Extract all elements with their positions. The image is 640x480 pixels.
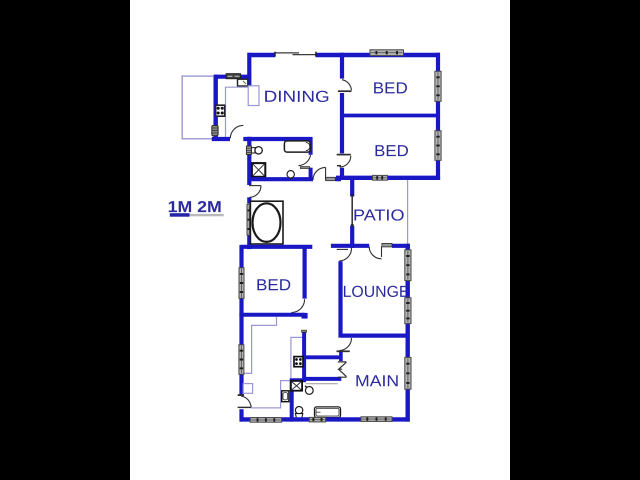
svg-text:LOUNGE: LOUNGE [343,284,410,301]
svg-text:BED: BED [256,277,291,294]
svg-text:MAIN: MAIN [355,373,399,390]
svg-text:PATIO: PATIO [353,208,405,225]
svg-text:BED: BED [374,143,409,160]
svg-text:BED: BED [373,80,408,97]
svg-text:DINING: DINING [264,89,330,106]
